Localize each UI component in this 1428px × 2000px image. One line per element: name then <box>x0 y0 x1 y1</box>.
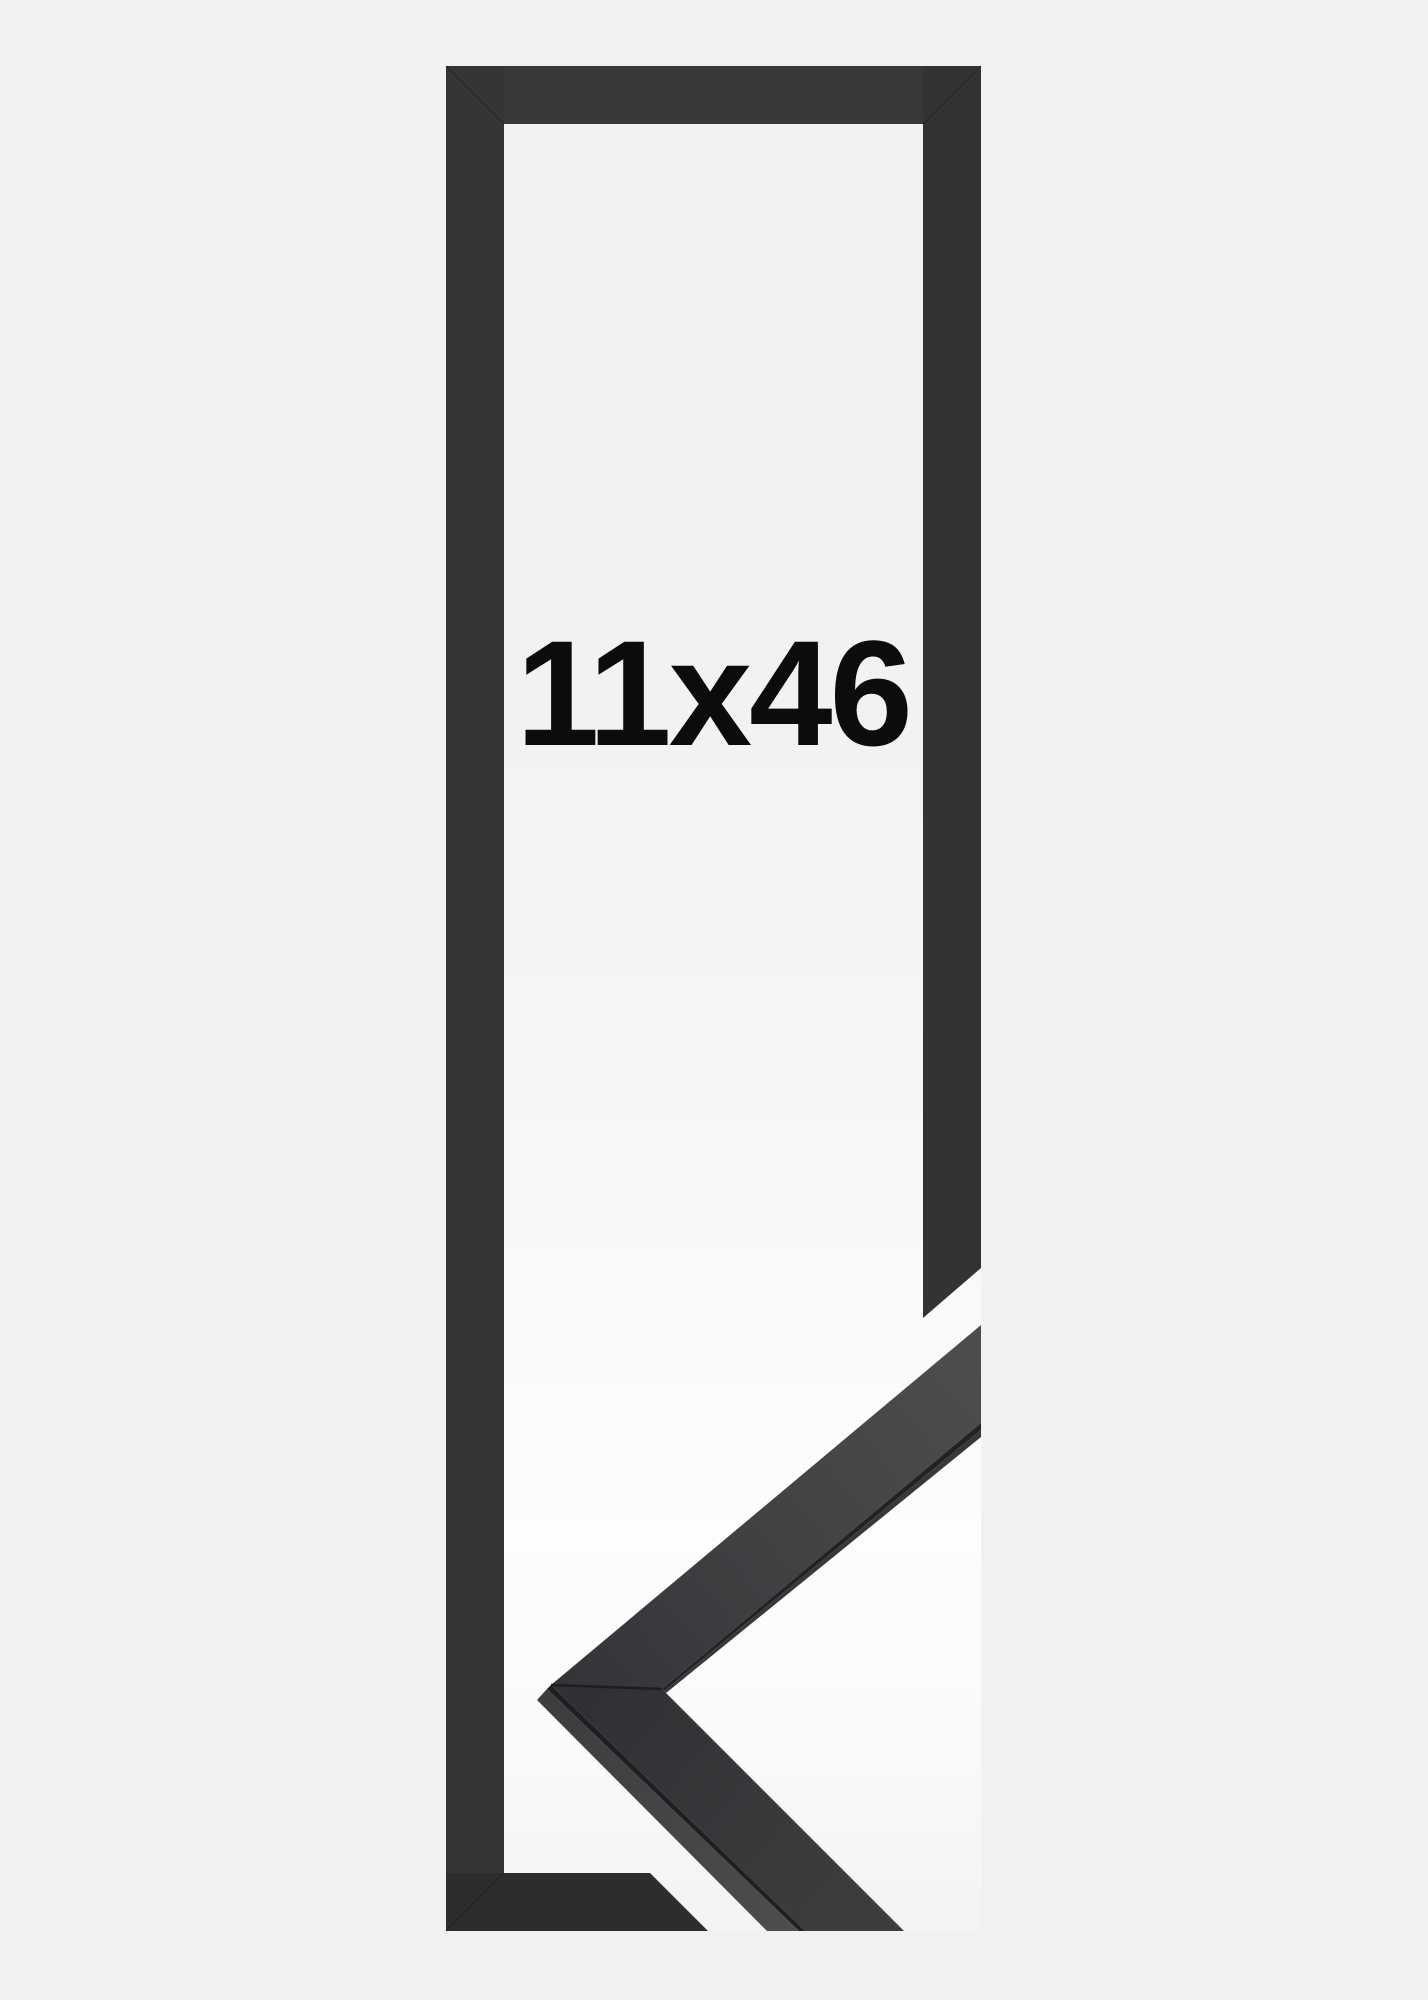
product-image: 11x46 <box>0 0 1428 2000</box>
frame-top-bar <box>446 66 981 124</box>
frame-left-bar <box>446 66 504 1931</box>
size-label: 11x46 <box>516 609 910 777</box>
frame-mockup-canvas: 11x46 <box>0 0 1428 2000</box>
frame-right-bar <box>923 66 981 1318</box>
